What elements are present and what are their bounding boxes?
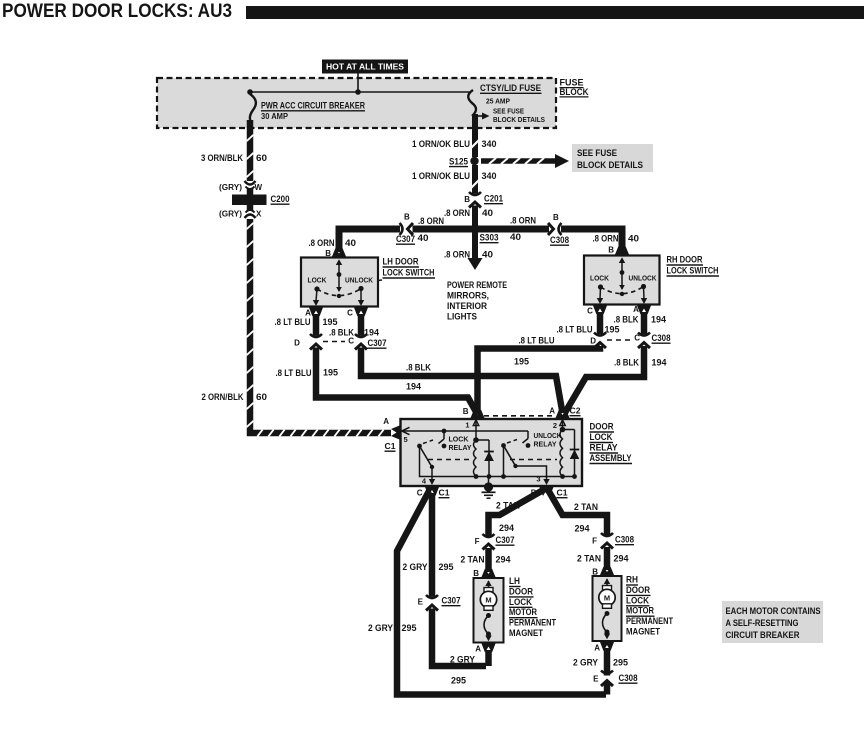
svg-text:E: E — [418, 598, 424, 607]
svg-text:W: W — [255, 183, 263, 192]
svg-text:A: A — [383, 417, 389, 426]
svg-text:195: 195 — [514, 357, 529, 367]
svg-text:BLOCK DETAILS: BLOCK DETAILS — [577, 160, 643, 170]
svg-text:EACH MOTOR CONTAINS: EACH MOTOR CONTAINS — [726, 606, 821, 617]
svg-text:3 ORN/BLK: 3 ORN/BLK — [201, 153, 243, 163]
svg-text:40: 40 — [482, 208, 493, 218]
svg-text:295: 295 — [451, 676, 466, 686]
svg-text:.8 BLK: .8 BLK — [406, 363, 431, 373]
svg-text:D: D — [294, 339, 300, 348]
svg-text:M: M — [485, 596, 491, 605]
svg-text:294: 294 — [496, 555, 511, 565]
svg-text:C2: C2 — [570, 407, 582, 416]
svg-text:MIRRORS,: MIRRORS, — [447, 291, 489, 302]
svg-text:.8 BLK: .8 BLK — [614, 315, 639, 325]
svg-text:B: B — [553, 213, 559, 222]
svg-text:C308: C308 — [652, 333, 671, 343]
svg-text:2: 2 — [553, 421, 557, 430]
svg-text:.8 ORN: .8 ORN — [444, 250, 470, 260]
svg-text:MOTOR: MOTOR — [509, 607, 537, 618]
svg-text:2 GRY: 2 GRY — [450, 655, 475, 665]
svg-text:DOOR: DOOR — [626, 585, 650, 596]
svg-text:F: F — [592, 537, 597, 546]
svg-text:194: 194 — [651, 315, 666, 325]
svg-text:2 GRY: 2 GRY — [573, 658, 598, 668]
svg-text:194: 194 — [652, 358, 667, 368]
svg-text:C: C — [587, 307, 593, 316]
svg-text:25 AMP: 25 AMP — [486, 99, 510, 106]
svg-text:294: 294 — [499, 523, 514, 533]
svg-text:C308: C308 — [615, 535, 634, 545]
svg-text:194: 194 — [406, 382, 421, 392]
svg-text:B: B — [463, 407, 469, 416]
svg-text:B: B — [464, 195, 470, 204]
svg-text:294: 294 — [575, 524, 590, 534]
svg-text:195: 195 — [323, 368, 338, 378]
svg-text:C1: C1 — [557, 489, 569, 498]
svg-text:C: C — [634, 334, 640, 343]
svg-text:295: 295 — [613, 658, 628, 668]
svg-text:A: A — [549, 407, 555, 416]
svg-text:PERMANENT: PERMANENT — [626, 616, 673, 627]
svg-text:40: 40 — [418, 233, 429, 243]
svg-text:.8 ORN: .8 ORN — [444, 208, 470, 218]
svg-text:MAGNET: MAGNET — [509, 628, 543, 639]
svg-text:A: A — [475, 645, 481, 654]
svg-text:295: 295 — [402, 623, 417, 633]
svg-text:C1: C1 — [385, 442, 397, 451]
svg-text:RELAY: RELAY — [534, 440, 557, 449]
svg-text:C307: C307 — [442, 596, 461, 606]
svg-text:5: 5 — [404, 435, 408, 444]
svg-text:RELAY: RELAY — [590, 443, 619, 454]
svg-text:295: 295 — [439, 562, 454, 572]
svg-text:RELAY: RELAY — [449, 443, 472, 452]
svg-text:1 ORN/OK BLU: 1 ORN/OK BLU — [412, 139, 470, 149]
svg-text:DOOR: DOOR — [509, 586, 533, 597]
svg-text:2 TAN: 2 TAN — [574, 502, 598, 512]
svg-text:.8 ORN: .8 ORN — [309, 238, 335, 248]
svg-text:LH DOOR: LH DOOR — [383, 257, 419, 268]
svg-text:C201: C201 — [484, 194, 503, 204]
svg-text:A SELF-RESETTING: A SELF-RESETTING — [726, 618, 799, 629]
svg-text:D: D — [590, 337, 596, 346]
svg-text:DOOR: DOOR — [590, 422, 614, 433]
svg-text:BLOCK DETAILS: BLOCK DETAILS — [493, 117, 545, 124]
svg-text:INTERIOR: INTERIOR — [447, 301, 487, 312]
svg-text:LOCK: LOCK — [308, 276, 328, 285]
svg-text:LOCK: LOCK — [626, 595, 649, 606]
svg-text:2 TAN: 2 TAN — [577, 554, 601, 564]
svg-text:60: 60 — [256, 392, 267, 402]
svg-text:B: B — [608, 246, 614, 255]
svg-text:(GRY): (GRY) — [219, 210, 242, 219]
svg-text:(GRY): (GRY) — [219, 183, 242, 192]
svg-text:POWER REMOTE: POWER REMOTE — [447, 280, 507, 291]
svg-text:.8 LT BLU: .8 LT BLU — [276, 368, 312, 378]
svg-text:S303: S303 — [480, 233, 499, 243]
svg-text:LIGHTS: LIGHTS — [447, 312, 477, 323]
svg-text:SEE FUSE: SEE FUSE — [493, 109, 524, 116]
svg-text:SEE FUSE: SEE FUSE — [577, 148, 617, 158]
svg-text:340: 340 — [482, 139, 497, 149]
svg-text:195: 195 — [323, 317, 338, 327]
svg-text:MOTOR: MOTOR — [626, 606, 654, 617]
svg-text:BLOCK: BLOCK — [560, 87, 589, 97]
svg-text:UNLOCK: UNLOCK — [629, 274, 657, 283]
svg-text:C308: C308 — [550, 235, 569, 245]
svg-text:1: 1 — [465, 421, 469, 430]
svg-text:40: 40 — [628, 234, 639, 244]
svg-text:X: X — [256, 210, 262, 219]
svg-text:C307: C307 — [396, 234, 415, 244]
svg-text:3: 3 — [536, 475, 540, 484]
svg-text:C1: C1 — [439, 489, 451, 498]
svg-text:C308: C308 — [619, 673, 638, 683]
svg-text:LOCK: LOCK — [590, 274, 610, 283]
svg-text:PWR ACC CIRCUIT BREAKER: PWR ACC CIRCUIT BREAKER — [261, 101, 365, 111]
svg-text:.8 LT BLU: .8 LT BLU — [275, 317, 311, 327]
svg-text:CIRCUIT BREAKER: CIRCUIT BREAKER — [726, 630, 800, 641]
svg-text:LOCK: LOCK — [509, 597, 532, 608]
svg-text:30 AMP: 30 AMP — [261, 112, 289, 121]
svg-text:C307: C307 — [368, 338, 387, 348]
svg-text:.8 ORN: .8 ORN — [418, 216, 444, 226]
svg-text:C200: C200 — [271, 194, 290, 204]
svg-text:A: A — [594, 644, 600, 653]
svg-text:LOCK SWITCH: LOCK SWITCH — [667, 266, 719, 277]
svg-text:C307: C307 — [496, 535, 515, 545]
svg-text:B: B — [404, 213, 410, 222]
svg-text:PERMANENT: PERMANENT — [509, 618, 556, 629]
svg-text:UNLOCK: UNLOCK — [345, 276, 373, 285]
svg-text:340: 340 — [482, 171, 497, 181]
svg-text:E: E — [593, 675, 599, 684]
svg-text:195: 195 — [605, 325, 620, 335]
svg-text:2 GRY: 2 GRY — [368, 623, 393, 633]
svg-text:C: C — [347, 309, 353, 318]
svg-text:POWER DOOR LOCKS: AU3: POWER DOOR LOCKS: AU3 — [2, 1, 232, 22]
svg-text:S125: S125 — [449, 157, 468, 167]
svg-text:294: 294 — [614, 554, 629, 564]
svg-text:.8 LT BLU: .8 LT BLU — [519, 336, 555, 346]
svg-text:LOCK: LOCK — [590, 432, 613, 443]
svg-text:2 GRY: 2 GRY — [403, 562, 428, 572]
svg-text:ASSEMBLY: ASSEMBLY — [590, 453, 633, 464]
svg-text:.8 BLK: .8 BLK — [614, 358, 639, 368]
svg-text:.8 LT BLU: .8 LT BLU — [557, 325, 593, 335]
svg-text:B: B — [473, 569, 479, 578]
svg-text:HOT AT ALL TIMES: HOT AT ALL TIMES — [326, 63, 405, 72]
svg-text:40: 40 — [482, 250, 493, 260]
svg-text:40: 40 — [510, 232, 521, 242]
svg-text:MAGNET: MAGNET — [626, 627, 660, 638]
svg-text:C: C — [348, 337, 354, 346]
svg-text:RH: RH — [626, 575, 638, 586]
svg-text:60: 60 — [256, 153, 267, 163]
svg-text:2 ORN/BLK: 2 ORN/BLK — [202, 392, 244, 402]
svg-text:CTSY/LID FUSE: CTSY/LID FUSE — [480, 83, 541, 93]
svg-text:M: M — [604, 594, 610, 603]
svg-text:40: 40 — [345, 238, 356, 248]
svg-text:RH DOOR: RH DOOR — [667, 255, 703, 266]
svg-text:.8 ORN: .8 ORN — [593, 234, 619, 244]
svg-text:F: F — [475, 537, 480, 546]
svg-text:LH: LH — [509, 576, 520, 587]
svg-text:LOCK SWITCH: LOCK SWITCH — [383, 268, 435, 279]
svg-text:.8 ORN: .8 ORN — [510, 216, 536, 226]
svg-text:C: C — [417, 489, 423, 498]
svg-text:2 TAN: 2 TAN — [461, 555, 485, 565]
svg-text:1 ORN/OK BLU: 1 ORN/OK BLU — [412, 171, 470, 181]
svg-text:2 TAN: 2 TAN — [496, 501, 520, 511]
